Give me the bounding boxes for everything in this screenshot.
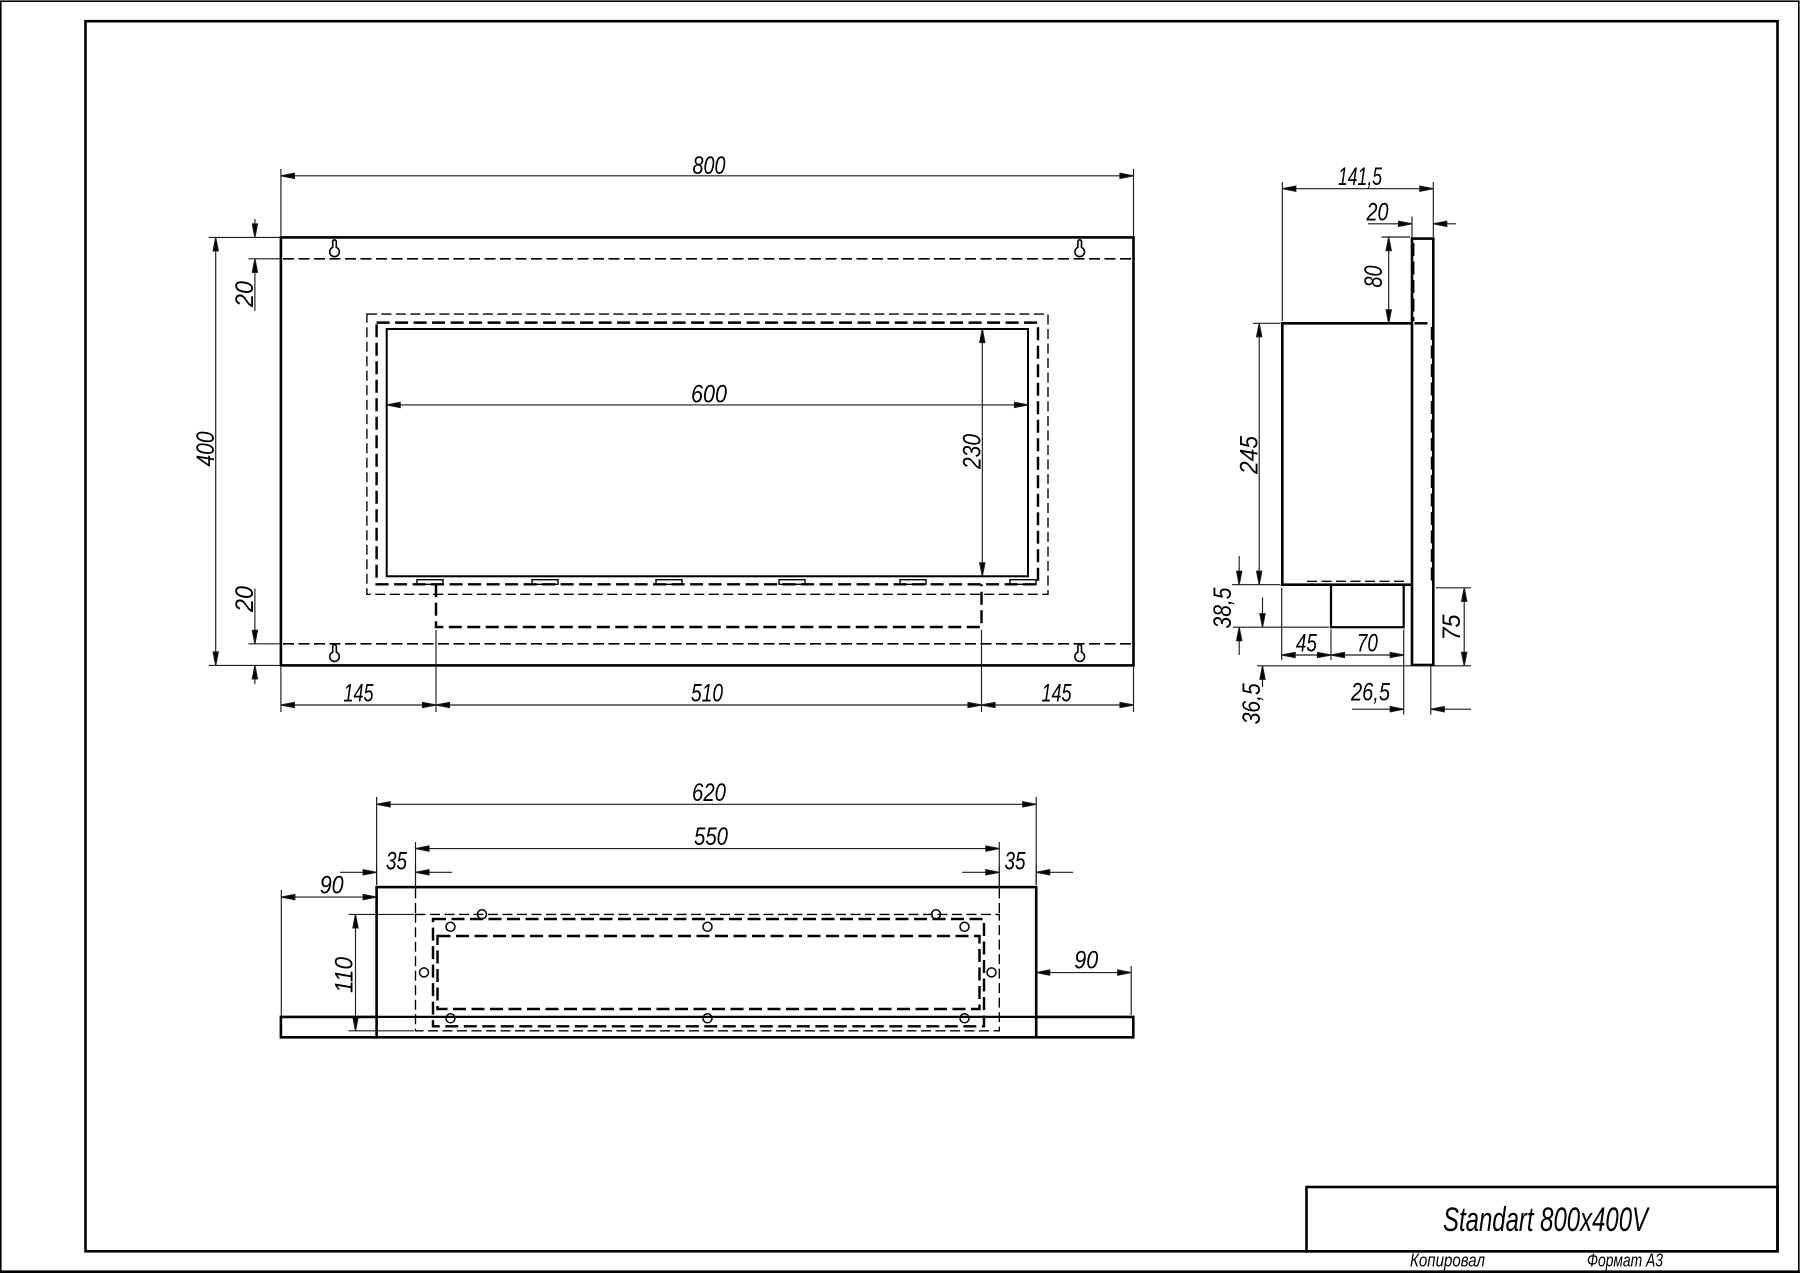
svg-text:145: 145 [1042, 679, 1072, 707]
svg-text:75: 75 [1438, 614, 1466, 640]
svg-text:45: 45 [1296, 630, 1317, 658]
svg-text:20: 20 [1366, 199, 1389, 227]
svg-text:Копировал: Копировал [1410, 1250, 1485, 1271]
svg-text:800: 800 [693, 152, 726, 180]
svg-text:550: 550 [694, 823, 728, 851]
svg-text:90: 90 [1074, 947, 1098, 975]
svg-text:245: 245 [1235, 436, 1263, 475]
svg-text:20: 20 [231, 281, 259, 308]
svg-text:Standart 800x400V: Standart 800x400V [1443, 1201, 1650, 1239]
svg-text:26,5: 26,5 [1350, 679, 1390, 707]
svg-text:35: 35 [1005, 848, 1026, 876]
svg-text:Формат А3: Формат А3 [1587, 1250, 1664, 1271]
svg-text:110: 110 [331, 957, 359, 993]
svg-text:90: 90 [320, 872, 344, 900]
svg-text:400: 400 [192, 431, 220, 466]
svg-text:80: 80 [1360, 265, 1388, 287]
svg-text:70: 70 [1357, 630, 1378, 658]
svg-text:35: 35 [386, 848, 407, 876]
svg-text:230: 230 [958, 434, 986, 470]
svg-text:141,5: 141,5 [1338, 163, 1382, 191]
svg-text:620: 620 [692, 779, 726, 807]
svg-text:20: 20 [231, 586, 259, 613]
svg-text:145: 145 [344, 679, 374, 707]
svg-text:510: 510 [691, 679, 723, 707]
svg-text:36,5: 36,5 [1238, 683, 1266, 724]
svg-text:600: 600 [691, 381, 727, 409]
svg-text:38,5: 38,5 [1209, 587, 1237, 628]
